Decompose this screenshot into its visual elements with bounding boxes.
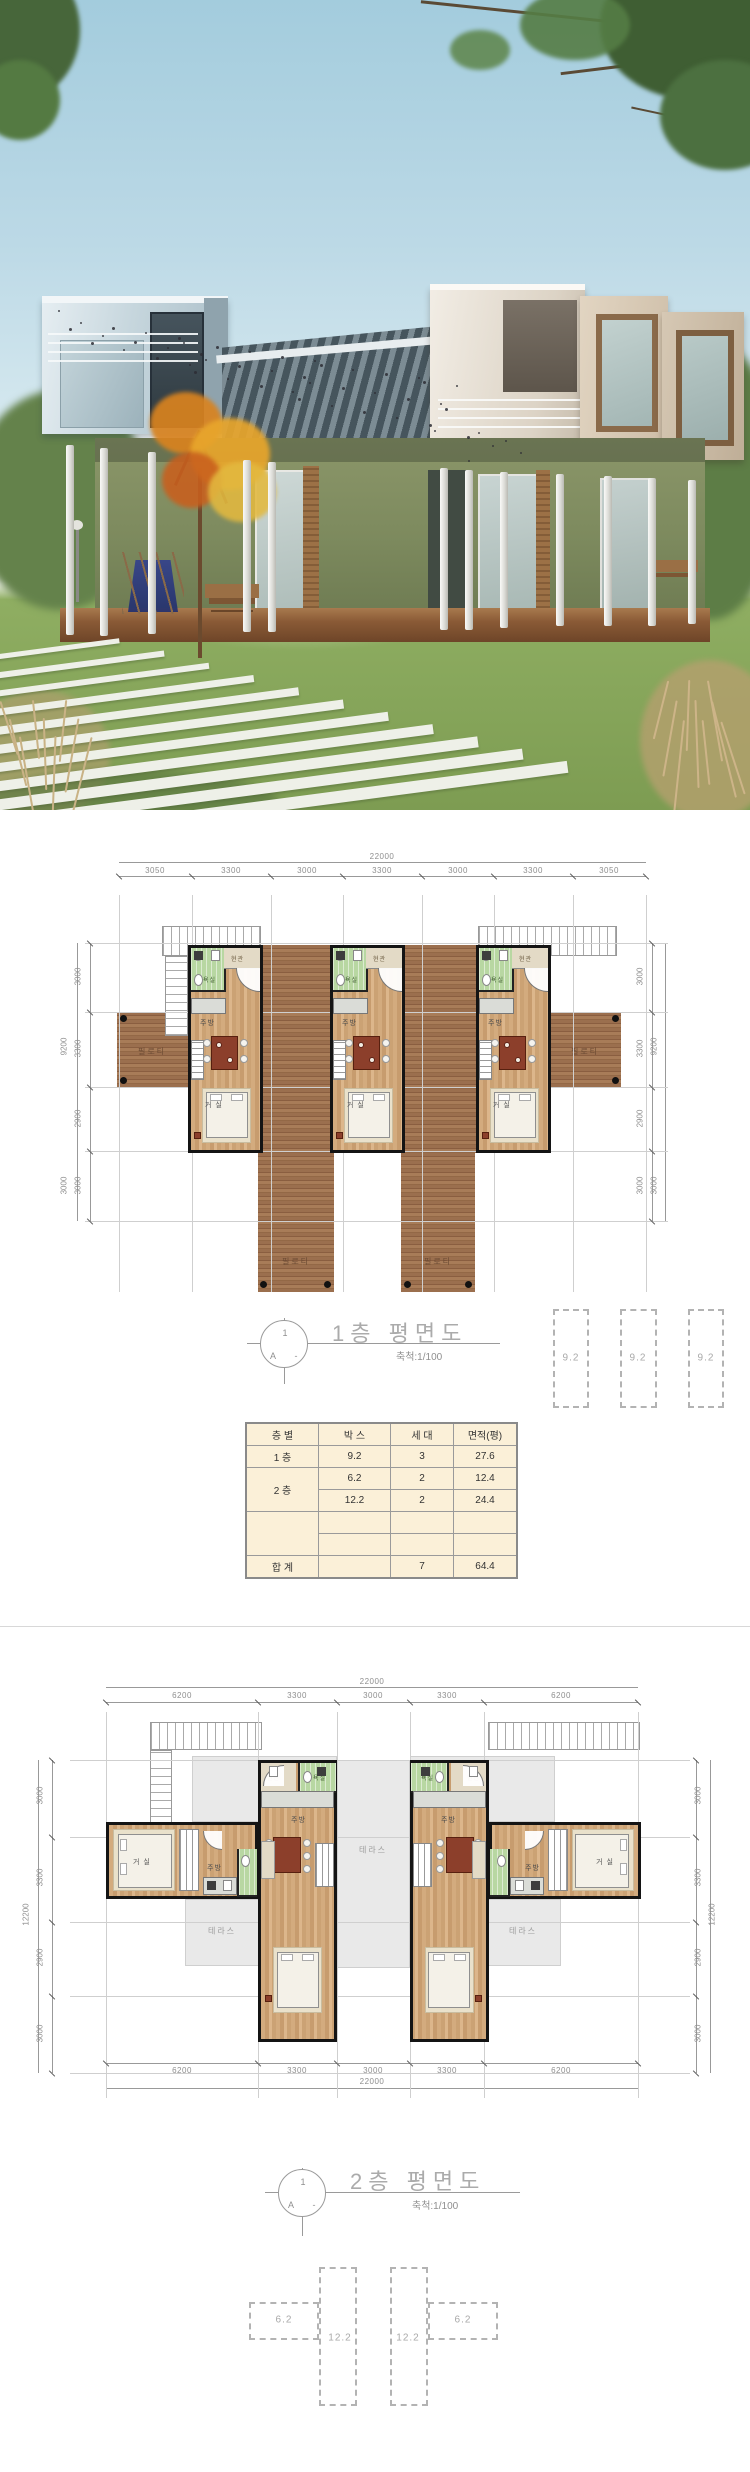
bird-icon: [238, 365, 241, 368]
door-arc-icon: [203, 1831, 222, 1850]
dining-table: [499, 1036, 526, 1070]
living-rug: [490, 1088, 539, 1143]
chair-icon: [303, 1839, 311, 1847]
grid-line: [119, 895, 120, 1292]
toilet-icon: [482, 974, 491, 986]
chair-icon: [240, 1055, 248, 1063]
dimension-label: 2900: [694, 1940, 703, 1976]
dimension-label: 3000: [694, 1778, 703, 1814]
column-dot: [404, 1281, 411, 1288]
chair-icon: [382, 1055, 390, 1063]
unit-plan1: 욕실현관주방거 실: [188, 945, 263, 1153]
column-dot: [465, 1281, 472, 1288]
kitchen-label: 주방: [342, 1018, 357, 1028]
title-symbol-number: 1: [282, 1328, 287, 1338]
dimension-label: 6200: [172, 1691, 192, 1700]
piloti-column: [556, 474, 564, 626]
internal-stair: [548, 1829, 568, 1891]
chair-icon: [436, 1852, 444, 1860]
piloti-label: 필로티: [138, 1046, 166, 1057]
cell-floor-total: 합 계: [246, 1556, 319, 1579]
cell-box: 9.2: [319, 1446, 391, 1468]
stove-icon: [317, 1767, 326, 1776]
living-label: 거 실: [596, 1857, 614, 1867]
plate-icon: [227, 1057, 233, 1063]
wood-slat-wall: [536, 470, 550, 612]
dimension-label: 9200: [650, 1029, 659, 1065]
title-symbol-number: 1: [300, 2177, 305, 2187]
table-row: 2 층 6.2 2 12.4: [246, 1468, 517, 1490]
dimension-label: 2900: [36, 1940, 45, 1976]
sink-icon: [211, 950, 220, 961]
terrace-label: 테라스: [359, 1845, 387, 1856]
pillow-icon: [433, 1954, 445, 1961]
dining-table: [353, 1036, 380, 1070]
dimension-label: 3300: [287, 2066, 307, 2075]
chair-icon: [491, 1039, 499, 1047]
kitchen-counter: [479, 998, 514, 1014]
plan1-scale: 축척:1/100: [396, 1348, 442, 1363]
column-dot: [120, 1077, 127, 1084]
side-entry: [472, 1841, 486, 1879]
living-label: 거 실: [133, 1857, 151, 1867]
living-rug: [425, 1947, 474, 2013]
bird-icon: [331, 405, 333, 407]
module-blue-roof-edge: [42, 296, 228, 303]
cell-box: [319, 1534, 391, 1556]
unit-plan1: 욕실현관주방거 실: [476, 945, 551, 1153]
area-summary-table: 층 별 박 스 세 대 면적(평) 1 층 9.2 3 27.6 2 층 6.2…: [245, 1422, 518, 1579]
cell-units: [391, 1512, 454, 1534]
dimension-label: 3000: [636, 959, 645, 995]
stove-icon: [421, 1767, 430, 1776]
grid-line: [646, 895, 647, 1292]
area-box-label: 9.2: [563, 1353, 580, 1364]
dimension-label: 3000: [74, 959, 83, 995]
title-symbol-dash: -: [295, 1351, 298, 1361]
header-box: 박 스: [319, 1423, 391, 1446]
chair-icon: [528, 1039, 536, 1047]
side-table-icon: [194, 1132, 201, 1139]
chair-icon: [303, 1852, 311, 1860]
plate-icon: [504, 1042, 510, 1048]
cell-floor: 1 층: [246, 1446, 319, 1468]
unit-plan2-center: 현관욕실주방: [258, 1760, 337, 2042]
piloti-column: [648, 478, 656, 626]
bird-icon: [178, 337, 181, 340]
chair-icon: [345, 1039, 353, 1047]
sink-icon: [353, 950, 362, 961]
dimension-label: 3300: [221, 866, 241, 875]
cell-units: 7: [391, 1556, 454, 1579]
bird-icon: [468, 460, 470, 462]
piloti-column: [148, 452, 156, 634]
diagram-label: 6.2: [276, 2315, 293, 2326]
bird-icon: [200, 353, 203, 356]
plate-icon: [515, 1057, 521, 1063]
wood-slat-wall: [303, 466, 319, 612]
piloti-strip: [404, 945, 476, 1153]
toilet-icon: [194, 974, 203, 986]
dimension-line: [90, 943, 91, 1221]
sink-icon: [269, 1766, 278, 1777]
grid-line: [422, 895, 423, 1292]
piloti-column: [100, 448, 108, 636]
entry-label: 현관: [231, 954, 244, 963]
module-tan2-window-glass: [682, 336, 728, 440]
pillow-icon: [519, 1094, 531, 1101]
table-row: [246, 1512, 517, 1534]
dimension-label: 3000: [636, 1168, 645, 1204]
kitchen-label: 주방: [291, 1815, 306, 1825]
dimension-label: 22000: [360, 2077, 385, 2086]
dimension-label: 3300: [636, 1031, 645, 1067]
grid-line: [337, 1712, 338, 2098]
door-arc-icon: [236, 968, 260, 992]
dimension-label: 3000: [694, 2016, 703, 2052]
bird-icon: [309, 382, 311, 384]
dimension-label: 3300: [437, 1691, 457, 1700]
balcony-railing: [438, 392, 580, 428]
dimension-label: 6200: [551, 2066, 571, 2075]
living-label: 거 실: [493, 1100, 511, 1110]
chair-icon: [203, 1055, 211, 1063]
grid-line: [573, 895, 574, 1292]
bird-icon: [145, 332, 147, 334]
dimension-label: 3000: [74, 1168, 83, 1204]
sink-icon: [499, 950, 508, 961]
autumn-foliage: [208, 462, 276, 522]
cell-units: 2: [391, 1490, 454, 1512]
piloti-column: [440, 468, 448, 630]
cell-box: 6.2: [319, 1468, 391, 1490]
chair-icon: [436, 1839, 444, 1847]
dimension-label: 22000: [360, 1677, 385, 1686]
pillow-icon: [281, 1954, 293, 1961]
side-entry: [261, 1841, 275, 1879]
piloti-column: [243, 460, 251, 632]
stove-icon: [194, 951, 203, 960]
bird-icon: [418, 377, 420, 379]
terrace-center: [337, 1760, 410, 1968]
piloti-label: 필로티: [424, 1256, 452, 1267]
title-symbol-letter: A: [288, 2200, 294, 2210]
bird-icon: [520, 452, 522, 454]
dimension-label: 3000: [297, 866, 317, 875]
dimension-line: [106, 1702, 638, 1703]
sink-icon: [223, 1880, 232, 1891]
living-rug: [273, 1947, 322, 2013]
cell-box: 12.2: [319, 1490, 391, 1512]
internal-stair: [479, 1040, 492, 1080]
piloti-label: 필로티: [282, 1256, 310, 1267]
house-rendering-photo: [0, 0, 750, 810]
external-stair: [488, 1722, 640, 1750]
plan2-title: 2층 평면도: [350, 2164, 485, 2196]
sofa-bed-icon: [206, 1092, 248, 1138]
grid-line: [85, 943, 668, 944]
cell-box: [319, 1556, 391, 1579]
title-symbol-letter: A: [270, 1351, 276, 1361]
pillow-icon: [620, 1839, 627, 1851]
unit-plan2-side: 거 실주방: [106, 1822, 258, 1899]
bird-icon: [167, 347, 169, 349]
dimension-line: [119, 876, 646, 877]
cell-area: 12.4: [454, 1468, 518, 1490]
internal-stair: [191, 1040, 204, 1080]
area-box-label: 9.2: [698, 1353, 715, 1364]
header-area: 면적(평): [454, 1423, 518, 1446]
internal-stair: [413, 1843, 432, 1887]
tree-foliage: [450, 30, 510, 70]
plan1-title: 1층 평면도: [332, 1316, 467, 1348]
module-white-roof-edge: [430, 284, 585, 290]
external-stair: [150, 1722, 262, 1750]
plate-icon: [369, 1057, 375, 1063]
chair-icon: [303, 1865, 311, 1873]
sofa-bed-icon: [494, 1092, 536, 1138]
kitchen-counter: [333, 998, 368, 1014]
dimension-label: 3000: [363, 1691, 383, 1700]
table-header-row: 층 별 박 스 세 대 면적(평): [246, 1423, 517, 1446]
kitchen-label: 주방: [441, 1815, 456, 1825]
ground-window: [478, 474, 538, 614]
chair-icon: [528, 1055, 536, 1063]
bathroom-label: 욕실: [491, 975, 504, 984]
chair-icon: [240, 1039, 248, 1047]
column-dot: [612, 1077, 619, 1084]
area-box-label: 9.2: [630, 1353, 647, 1364]
kitchen-label: 주방: [525, 1863, 540, 1873]
plate-icon: [216, 1042, 222, 1048]
diagram-label: 6.2: [455, 2315, 472, 2326]
dimension-label: 3300: [74, 1031, 83, 1067]
pillow-icon: [120, 1839, 127, 1851]
bed-icon: [428, 1952, 470, 2008]
living-rug: [344, 1088, 393, 1143]
dimension-label: 3050: [145, 866, 165, 875]
dimension-label: 3000: [448, 866, 468, 875]
dimension-line: [119, 862, 646, 863]
stove-icon: [482, 951, 491, 960]
side-table-icon: [475, 1995, 482, 2002]
section-divider: [0, 1626, 750, 1627]
dimension-line: [106, 2063, 638, 2064]
internal-stair: [179, 1829, 199, 1891]
toilet-icon: [336, 974, 345, 986]
bird-icon: [298, 398, 301, 401]
bird-icon: [91, 342, 94, 345]
cell-units: [391, 1534, 454, 1556]
stove-icon: [336, 951, 345, 960]
piloti-deck-bottom: [401, 1153, 475, 1292]
bird-icon: [505, 440, 507, 442]
dimension-label: 3000: [36, 1778, 45, 1814]
dimension-label: 12200: [22, 1897, 31, 1933]
plan2-scale: 축척:1/100: [412, 2197, 458, 2212]
bird-icon: [478, 432, 480, 434]
side-table-icon: [482, 1132, 489, 1139]
terrace-label: 테라스: [208, 1926, 236, 1937]
door-arc-icon: [524, 968, 548, 992]
diagram-label: 12.2: [328, 2333, 351, 2344]
cell-area: 64.4: [454, 1556, 518, 1579]
piloti-column: [604, 476, 612, 626]
kitchen-counter: [191, 998, 226, 1014]
kitchen-counter: [413, 1791, 486, 1808]
header-units: 세 대: [391, 1423, 454, 1446]
bird-icon: [407, 398, 410, 401]
dimension-line: [106, 2088, 638, 2089]
cell-units: 3: [391, 1446, 454, 1468]
dining-table: [446, 1837, 474, 1873]
cell-floor: [246, 1512, 319, 1556]
cell-area: [454, 1512, 518, 1534]
table-total-row: 합 계 7 64.4: [246, 1556, 517, 1579]
piloti-label: 필로티: [571, 1046, 599, 1057]
grid-line: [106, 1712, 107, 2098]
bird-icon: [156, 357, 159, 360]
piloti-column: [66, 445, 74, 635]
terrace-label: 테라스: [509, 1926, 537, 1937]
dimension-label: 6200: [172, 2066, 192, 2075]
bird-icon: [80, 322, 82, 324]
cell-box: [319, 1512, 391, 1534]
dimension-label: 9200: [60, 1029, 69, 1065]
pillow-icon: [373, 1094, 385, 1101]
module-tan-window-glass: [602, 320, 652, 426]
pillow-icon: [454, 1954, 466, 1961]
chair-icon: [436, 1865, 444, 1873]
bird-icon: [440, 403, 442, 405]
entry-label: 현관: [519, 954, 532, 963]
bed-icon: [277, 1952, 319, 2008]
dining-table: [273, 1837, 301, 1873]
column-dot: [120, 1015, 127, 1022]
chair-icon: [345, 1055, 353, 1063]
chair-icon: [382, 1039, 390, 1047]
bathroom-label: 욕실: [203, 975, 216, 984]
entry-label: 현관: [373, 954, 386, 963]
external-stair: [165, 956, 188, 1036]
bird-icon: [102, 335, 104, 337]
bird-icon: [227, 378, 229, 380]
dimension-label: 3000: [60, 1168, 69, 1204]
kitchen-label: 주방: [488, 1018, 503, 1028]
toilet-icon: [435, 1771, 444, 1783]
cell-area: 24.4: [454, 1490, 518, 1512]
living-label: 거 실: [347, 1100, 365, 1110]
cell-units: 2: [391, 1468, 454, 1490]
cell-area: [454, 1534, 518, 1556]
sink-icon: [469, 1766, 478, 1777]
side-table-icon: [336, 1132, 343, 1139]
grid-line: [70, 1760, 690, 1761]
dimension-label: 3000: [36, 2016, 45, 2052]
chair-icon: [491, 1055, 499, 1063]
sofa-bed-icon: [348, 1092, 390, 1138]
unit-plan2-side: 거 실주방: [489, 1822, 641, 1899]
toilet-icon: [497, 1855, 506, 1867]
header-floor: 층 별: [246, 1423, 319, 1446]
module-white-opening: [503, 300, 577, 392]
dimension-label: 3300: [372, 866, 392, 875]
cell-area: 27.6: [454, 1446, 518, 1468]
bird-icon: [189, 364, 191, 366]
dining-table: [211, 1036, 238, 1070]
dimension-line: [106, 1687, 638, 1688]
plate-icon: [358, 1042, 364, 1048]
kitchen-counter: [261, 1791, 334, 1808]
piloti-column: [465, 470, 473, 630]
bird-icon: [58, 310, 60, 312]
dimension-label: 3050: [599, 866, 619, 875]
diagram-label: 12.2: [396, 2333, 419, 2344]
grid-line: [70, 1922, 690, 1923]
pillow-icon: [120, 1863, 127, 1875]
side-table-icon: [265, 1995, 272, 2002]
dimension-label: 3300: [287, 1691, 307, 1700]
title-symbol-dash: -: [313, 2200, 316, 2210]
piloti-deck-bottom: [258, 1153, 334, 1292]
dimension-label: 2900: [74, 1101, 83, 1137]
door-arc-icon: [525, 1831, 544, 1850]
stove-icon: [531, 1881, 540, 1890]
bird-icon: [342, 387, 345, 390]
piloti-column: [500, 472, 508, 628]
dimension-label: 3000: [650, 1168, 659, 1204]
chair-icon: [203, 1039, 211, 1047]
pillow-icon: [302, 1954, 314, 1961]
pillow-icon: [620, 1863, 627, 1875]
stove-icon: [207, 1881, 216, 1890]
bathroom-label: 욕실: [345, 975, 358, 984]
street-lamp: [76, 528, 79, 602]
dimension-label: 3000: [363, 2066, 383, 2075]
grid-line: [271, 895, 272, 1292]
dimension-line: [665, 943, 666, 1221]
sink-icon: [515, 1880, 524, 1891]
piloti-strip: [263, 945, 330, 1153]
kitchen-label: 주방: [200, 1018, 215, 1028]
bird-icon: [249, 351, 251, 353]
column-dot: [612, 1015, 619, 1022]
dimension-label: 22000: [370, 852, 395, 861]
column-dot: [324, 1281, 331, 1288]
page: 22000 필로티 필로티 필로티 필로티 1 A - 1층 평면도 축척:1/…: [0, 0, 750, 2472]
dimension-label: 6200: [551, 1691, 571, 1700]
module-blue-railing: [48, 328, 198, 362]
piloti-column: [268, 462, 276, 632]
living-label: 거 실: [205, 1100, 223, 1110]
toilet-icon: [303, 1771, 312, 1783]
internal-stair: [315, 1843, 334, 1887]
dimension-line: [52, 1760, 53, 2073]
piloti-column: [688, 480, 696, 624]
cell-floor: 2 층: [246, 1468, 319, 1512]
pillow-icon: [231, 1094, 243, 1101]
bird-icon: [260, 385, 263, 388]
bird-icon: [492, 445, 494, 447]
column-dot: [260, 1281, 267, 1288]
dimension-label: 3300: [36, 1860, 45, 1896]
door-arc-icon: [378, 968, 402, 992]
dimension-label: 3300: [694, 1860, 703, 1896]
grid-line: [85, 1221, 668, 1222]
dimension-label: 2900: [636, 1101, 645, 1137]
living-rug: [202, 1088, 251, 1143]
kitchen-label: 주방: [207, 1863, 222, 1873]
